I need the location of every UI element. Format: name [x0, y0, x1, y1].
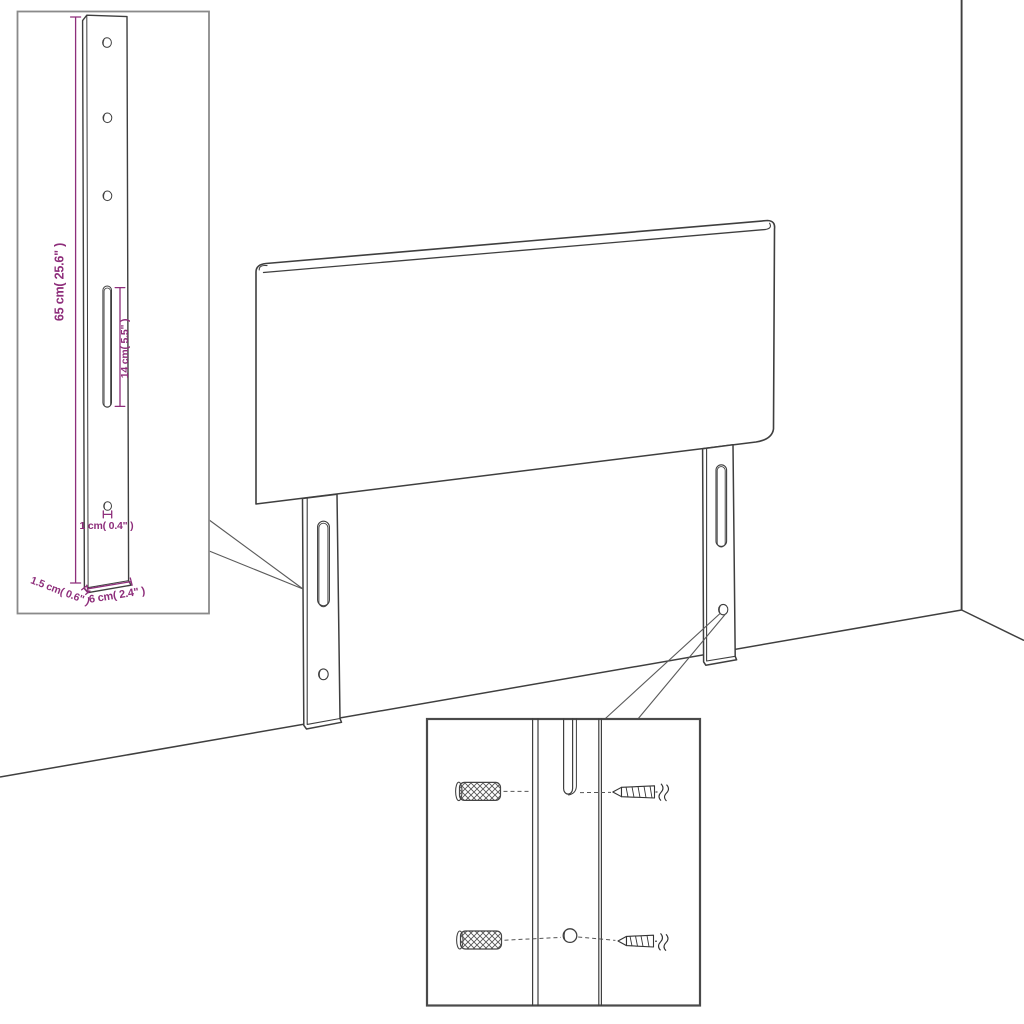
right-leg-outline [703, 445, 737, 665]
headboard-left-leg [303, 494, 342, 729]
mount-inset-callout-left [605, 613, 721, 719]
mount-inset-callout-right [638, 614, 726, 719]
inset-mounting-detail [427, 719, 700, 1006]
dim-slot-length-label: 14 cm( 5.5" ) [119, 319, 131, 379]
headboard-right-leg [703, 445, 737, 665]
headboard-drawing [256, 221, 775, 730]
headboard-panel [256, 221, 775, 505]
leg-inset-callout-lower [209, 551, 303, 589]
left-leg-outline [303, 494, 342, 729]
wall-plug-upper-body [460, 782, 501, 800]
inset-leg-outline [83, 15, 131, 592]
floor-line-right [962, 610, 1024, 641]
leg-inset-callout-upper [209, 520, 303, 589]
diagram-canvas: 65 cm( 25.6" ) 14 cm( 5.5" ) 1 cm( 0.4" … [0, 0, 1024, 1024]
callout-lines [209, 520, 726, 719]
inset-leg-detail: 65 cm( 25.6" ) 14 cm( 5.5" ) 1 cm( 0.4" … [18, 12, 210, 614]
diagram-page: 65 cm( 25.6" ) 14 cm( 5.5" ) 1 cm( 0.4" … [0, 0, 1024, 1024]
dim-leg-height-label: 65 cm( 25.6" ) [53, 243, 67, 321]
panel-outline [256, 221, 775, 505]
dim-hole-diameter-label: 1 cm( 0.4" ) [80, 520, 134, 532]
wall-plug-lower-body [461, 931, 502, 949]
